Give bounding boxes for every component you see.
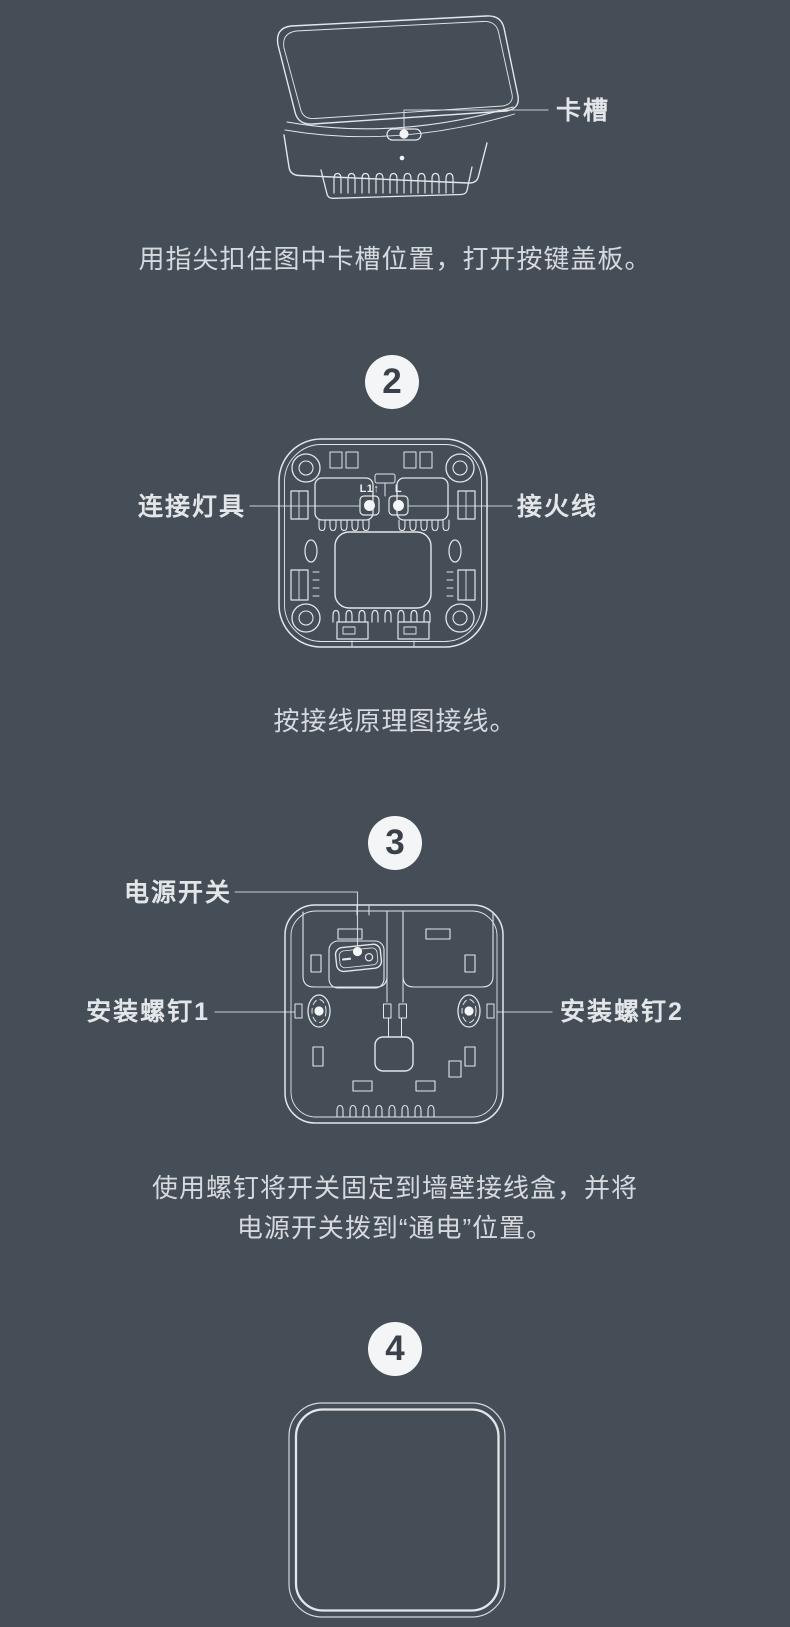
switch-front-cover-illustration — [260, 1390, 530, 1627]
slot-notch — [387, 129, 421, 140]
right-compartment — [403, 912, 493, 987]
connect-lamp-label: 连接灯具 — [138, 492, 246, 522]
center-plate — [335, 532, 431, 608]
step2-caption: 按接线原理图接线。 — [0, 701, 790, 741]
cover-base — [284, 135, 487, 183]
terminal-l1: L1↑ — [360, 483, 380, 515]
switch-back-wiring-illustration: L1↑ L — [120, 430, 670, 655]
live-wire-label: 接火线 — [517, 492, 598, 522]
center-channel — [384, 912, 407, 1037]
power-callout-line — [235, 892, 358, 946]
top-clips — [330, 452, 432, 468]
front-cover-inner — [296, 1410, 499, 1611]
left-compartment — [303, 912, 387, 987]
step3-caption: 使用螺钉将开关固定到墙壁接线盒，并将 电源开关拨到“通电”位置。 — [0, 1168, 790, 1248]
back-frame-outer — [279, 439, 487, 647]
front-cover-outer — [289, 1403, 505, 1617]
mount-screw1-label: 安装螺钉1 — [86, 997, 210, 1027]
terminal-l: L — [389, 483, 408, 515]
terminal-l1-label: L1↑ — [360, 483, 380, 495]
step1-caption: 用指尖扣住图中卡槽位置，打开按键盖板。 — [0, 239, 790, 279]
terminal-blocks — [315, 478, 449, 531]
slot-label: 卡槽 — [556, 96, 610, 126]
mount-screw2-label: 安装螺钉2 — [560, 997, 684, 1027]
install-guide-page: 卡槽 用指尖扣住图中卡槽位置，打开按键盖板。 2 L1↑ — [0, 0, 790, 1627]
top-ticks — [357, 906, 369, 915]
step3-caption-line2: 电源开关拨到“通电”位置。 — [0, 1208, 790, 1248]
top-center-notch — [375, 474, 395, 483]
bottom-fins — [337, 1106, 434, 1118]
power-switch-label: 电源开关 — [124, 878, 232, 908]
base-screw-dot — [400, 156, 405, 161]
terminal-l-label: L — [395, 483, 402, 495]
step4-badge: 4 — [368, 1322, 422, 1376]
cover-top-face — [278, 16, 519, 137]
bottom-center-plate — [375, 1037, 413, 1071]
bottom-fins — [333, 611, 430, 647]
step2-badge: 2 — [365, 355, 419, 409]
power-switch-dot — [353, 947, 362, 956]
switch-cover-perspective-illustration — [230, 0, 560, 210]
screw-hole-1 — [295, 995, 330, 1027]
screw-hole-2 — [458, 995, 494, 1027]
step3-caption-line1: 使用螺钉将开关固定到墙壁接线盒，并将 — [0, 1168, 790, 1208]
